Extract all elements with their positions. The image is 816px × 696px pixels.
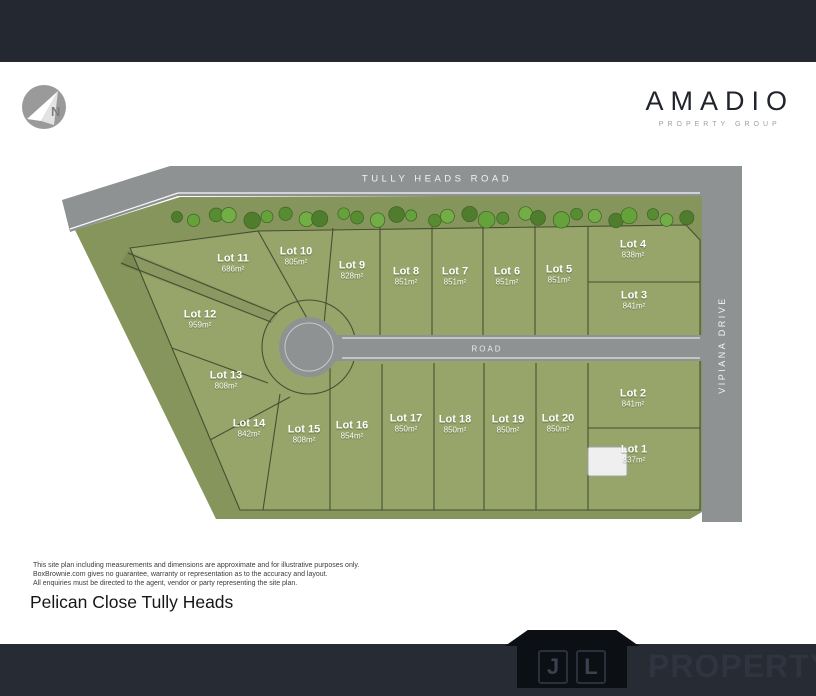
disclaimer-line-1: This site plan including measurements an… xyxy=(33,561,359,570)
tree-icon xyxy=(187,214,199,226)
tree-icon xyxy=(312,211,328,227)
jl-property-logo: JL xyxy=(505,630,639,688)
jl-logo-letter: L xyxy=(576,650,606,684)
tree-icon xyxy=(571,208,583,220)
footer-brand-text: PROPERTY xyxy=(648,648,816,685)
tree-icon xyxy=(406,210,417,221)
tree-icon xyxy=(351,211,364,224)
tree-icon xyxy=(244,212,261,229)
tree-icon xyxy=(261,211,273,223)
tree-icon xyxy=(553,212,569,228)
tree-icon xyxy=(478,211,495,228)
disclaimer-line-2: BoxBrownie.com gives no guarantee, warra… xyxy=(33,570,359,579)
tree-icon xyxy=(370,213,384,227)
jl-logo-box: JL xyxy=(517,646,627,688)
tree-icon xyxy=(279,207,292,220)
tree-icon xyxy=(462,206,477,221)
jl-logo-letter: J xyxy=(538,650,568,684)
tree-icon xyxy=(647,209,658,220)
tree-icon xyxy=(680,211,694,225)
tree-icon xyxy=(221,208,236,223)
road-label-vipiana-drive: VIPIANA DRIVE xyxy=(717,296,727,394)
disclaimer-line-3: All enquiries must be directed to the ag… xyxy=(33,579,359,588)
page: N AMADIO PROPERTY GROUP xyxy=(0,0,816,696)
tree-icon xyxy=(497,212,509,224)
disclaimer: This site plan including measurements an… xyxy=(33,561,359,588)
tree-icon xyxy=(338,208,350,220)
tree-icon xyxy=(621,208,637,224)
tree-icon xyxy=(389,207,405,223)
house-roof-icon xyxy=(505,630,639,646)
tree-icon xyxy=(660,214,673,227)
tree-icon xyxy=(172,212,183,223)
road-label-tully-heads: TULLY HEADS ROAD xyxy=(362,174,512,185)
page-title: Pelican Close Tully Heads xyxy=(30,592,233,613)
road-label-road: ROAD xyxy=(471,345,502,354)
tree-icon xyxy=(429,214,442,227)
tree-icon xyxy=(531,211,546,226)
building-footprint xyxy=(588,447,627,476)
tree-icon xyxy=(440,209,454,223)
tree-icon xyxy=(588,209,601,222)
